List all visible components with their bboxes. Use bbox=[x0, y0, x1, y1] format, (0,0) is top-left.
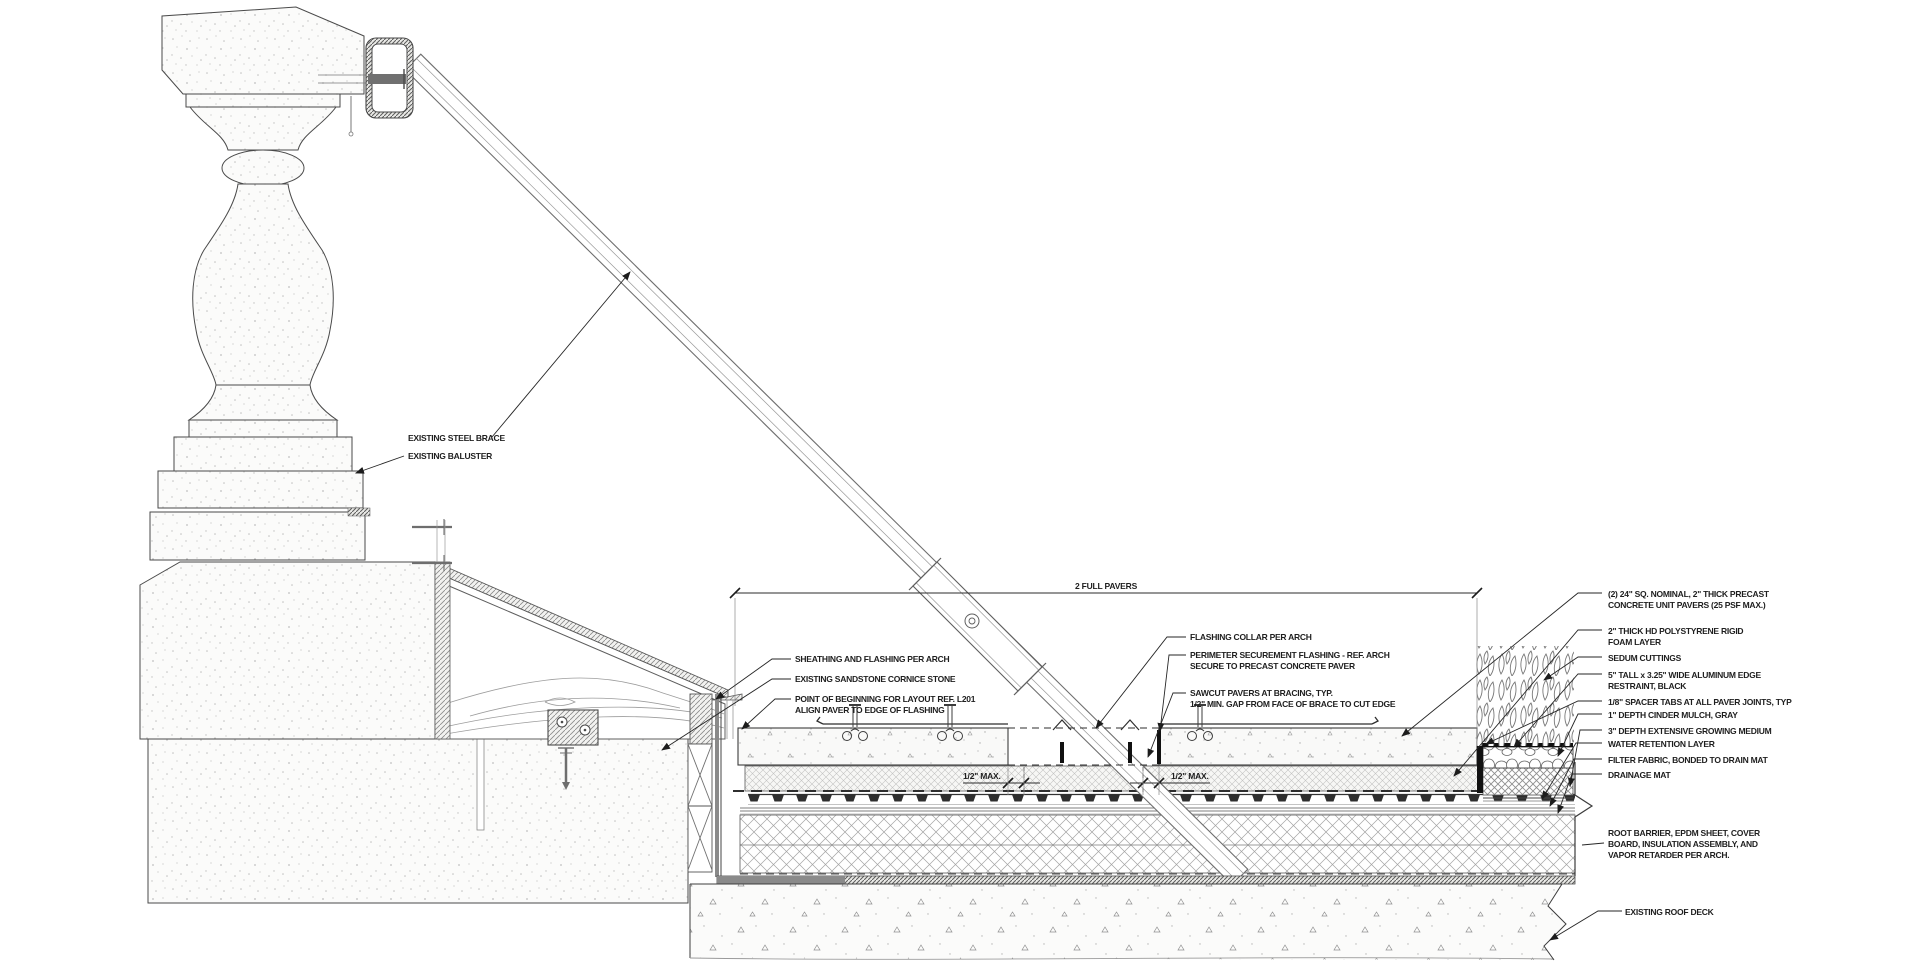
x-braced-blocking bbox=[688, 744, 712, 872]
baluster-foot-flare bbox=[189, 385, 337, 420]
construction-detail-page: 2 FULL PAVERS 1/2" MAX. 1/2" MAX. EXISTI… bbox=[0, 0, 1920, 969]
label-steel-brace: EXISTING STEEL BRACE bbox=[408, 433, 505, 443]
baluster-foot-band bbox=[189, 420, 337, 437]
leader-steel-brace bbox=[492, 272, 630, 437]
baluster-cap-band bbox=[186, 94, 340, 107]
detail-drawing: 2 FULL PAVERS 1/2" MAX. 1/2" MAX. EXISTI… bbox=[0, 0, 1920, 969]
dim-full-pavers-text: 2 FULL PAVERS bbox=[1075, 581, 1138, 591]
label-root-barrier-2: BOARD, INSULATION ASSEMBLY, AND bbox=[1608, 839, 1758, 849]
label-foam-2: FOAM LAYER bbox=[1608, 637, 1661, 647]
label-sawcut: SAWCUT PAVERS AT BRACING, TYP. bbox=[1190, 688, 1333, 698]
bracket-bolt bbox=[368, 74, 406, 84]
dim-gap-right-text: 1/2" MAX. bbox=[1171, 771, 1209, 781]
cornice-anchor-bolts bbox=[412, 519, 452, 571]
break-symbol bbox=[1575, 762, 1592, 876]
label-cornice: EXISTING SANDSTONE CORNICE STONE bbox=[795, 674, 956, 684]
label-perimeter-2: SECURE TO PRECAST CONCRETE PAVER bbox=[1190, 661, 1355, 671]
label-water-retention: WATER RETENTION LAYER bbox=[1608, 739, 1715, 749]
dim-gap-left-text: 1/2" MAX. bbox=[963, 771, 1001, 781]
paver-left bbox=[738, 728, 1008, 765]
growing-medium bbox=[1483, 768, 1573, 795]
label-mulch: 1" DEPTH CINDER MULCH, GRAY bbox=[1608, 710, 1738, 720]
label-sheathing: SHEATHING AND FLASHING PER ARCH bbox=[795, 654, 949, 664]
leader-pob bbox=[742, 699, 791, 729]
parapet-blocking-upper bbox=[690, 694, 712, 744]
perimeter-flashing-bar bbox=[1157, 730, 1161, 764]
brace-bolt bbox=[965, 614, 979, 628]
edge-restraint bbox=[1477, 743, 1483, 793]
baluster-plinth bbox=[174, 437, 352, 471]
label-drainage-mat: DRAINAGE MAT bbox=[1608, 770, 1672, 780]
label-perimeter: PERIMETER SECUREMENT FLASHING - REF. ARC… bbox=[1190, 650, 1390, 660]
baluster-pin-hook bbox=[349, 132, 353, 136]
green-roof-section bbox=[1474, 646, 1574, 801]
roof-deck bbox=[690, 884, 1566, 960]
securement-flashing-left bbox=[817, 717, 1008, 724]
base-course-1 bbox=[158, 471, 363, 508]
label-spacer-tabs: 1/8" SPACER TABS AT ALL PAVER JOINTS, TY… bbox=[1608, 697, 1792, 707]
baluster-vase bbox=[193, 184, 334, 385]
label-edge-restraint-2: RESTRAINT, BLACK bbox=[1608, 681, 1687, 691]
wood-nailer-block bbox=[548, 710, 598, 745]
baluster-bead bbox=[222, 150, 304, 186]
label-sedum: SEDUM CUTTINGS bbox=[1608, 653, 1682, 663]
insulation-assembly bbox=[740, 815, 1575, 873]
label-foam: 2" THICK HD POLYSTYRENE RIGID bbox=[1608, 626, 1743, 636]
label-root-barrier-3: VAPOR RETARDER PER ARCH. bbox=[1608, 850, 1729, 860]
foam-layer bbox=[745, 766, 1483, 791]
baluster-cap-stone bbox=[162, 7, 364, 94]
label-baluster: EXISTING BALUSTER bbox=[408, 451, 492, 461]
stone-anchor-rod bbox=[477, 739, 484, 830]
label-filter-fabric: FILTER FABRIC, BONDED TO DRAIN MAT bbox=[1608, 755, 1769, 765]
label-edge-restraint: 5" TALL x 3.25" WIDE ALUMINUM EDGE bbox=[1608, 670, 1761, 680]
epdm-flashing-gray bbox=[717, 876, 845, 884]
leader-baluster bbox=[356, 456, 404, 473]
cornice-stone-block bbox=[140, 562, 435, 739]
label-pavers-2: CONCRETE UNIT PAVERS (25 PSF MAX.) bbox=[1608, 600, 1766, 610]
parapet-flashing bbox=[712, 694, 742, 877]
label-pavers: (2) 24" SQ. NOMINAL, 2" THICK PRECAST bbox=[1608, 589, 1770, 599]
mulch-layer bbox=[1483, 747, 1573, 768]
label-pob: POINT OF BEGINNING FOR LAYOUT REF. L201 bbox=[795, 694, 976, 704]
label-sawcut-2: 1/2" MIN. GAP FROM FACE OF BRACE TO CUT … bbox=[1190, 699, 1396, 709]
base-course-2 bbox=[150, 512, 365, 560]
label-growing-medium: 3" DEPTH EXTENSIVE GROWING MEDIUM bbox=[1608, 726, 1772, 736]
securement-flashing-right bbox=[1159, 717, 1378, 724]
paver-right bbox=[1159, 728, 1477, 765]
leader-root-barrier bbox=[1582, 843, 1604, 845]
epdm-root-barrier bbox=[717, 876, 1575, 884]
cornice-stone-lower bbox=[148, 739, 688, 903]
baluster-ogee-molding bbox=[190, 107, 336, 150]
label-flashing-collar: FLASHING COLLAR PER ARCH bbox=[1190, 632, 1312, 642]
wedge-end-hatch-strip bbox=[435, 562, 450, 739]
label-root-barrier: ROOT BARRIER, EPDM SHEET, COVER bbox=[1608, 828, 1760, 838]
label-pob-2: ALIGN PAVER TO EDGE OF FLASHING bbox=[795, 705, 945, 715]
leader-flashing-collar bbox=[1096, 637, 1186, 728]
mortar-joint-hatch bbox=[348, 508, 370, 516]
label-roof-deck: EXISTING ROOF DECK bbox=[1625, 907, 1715, 917]
